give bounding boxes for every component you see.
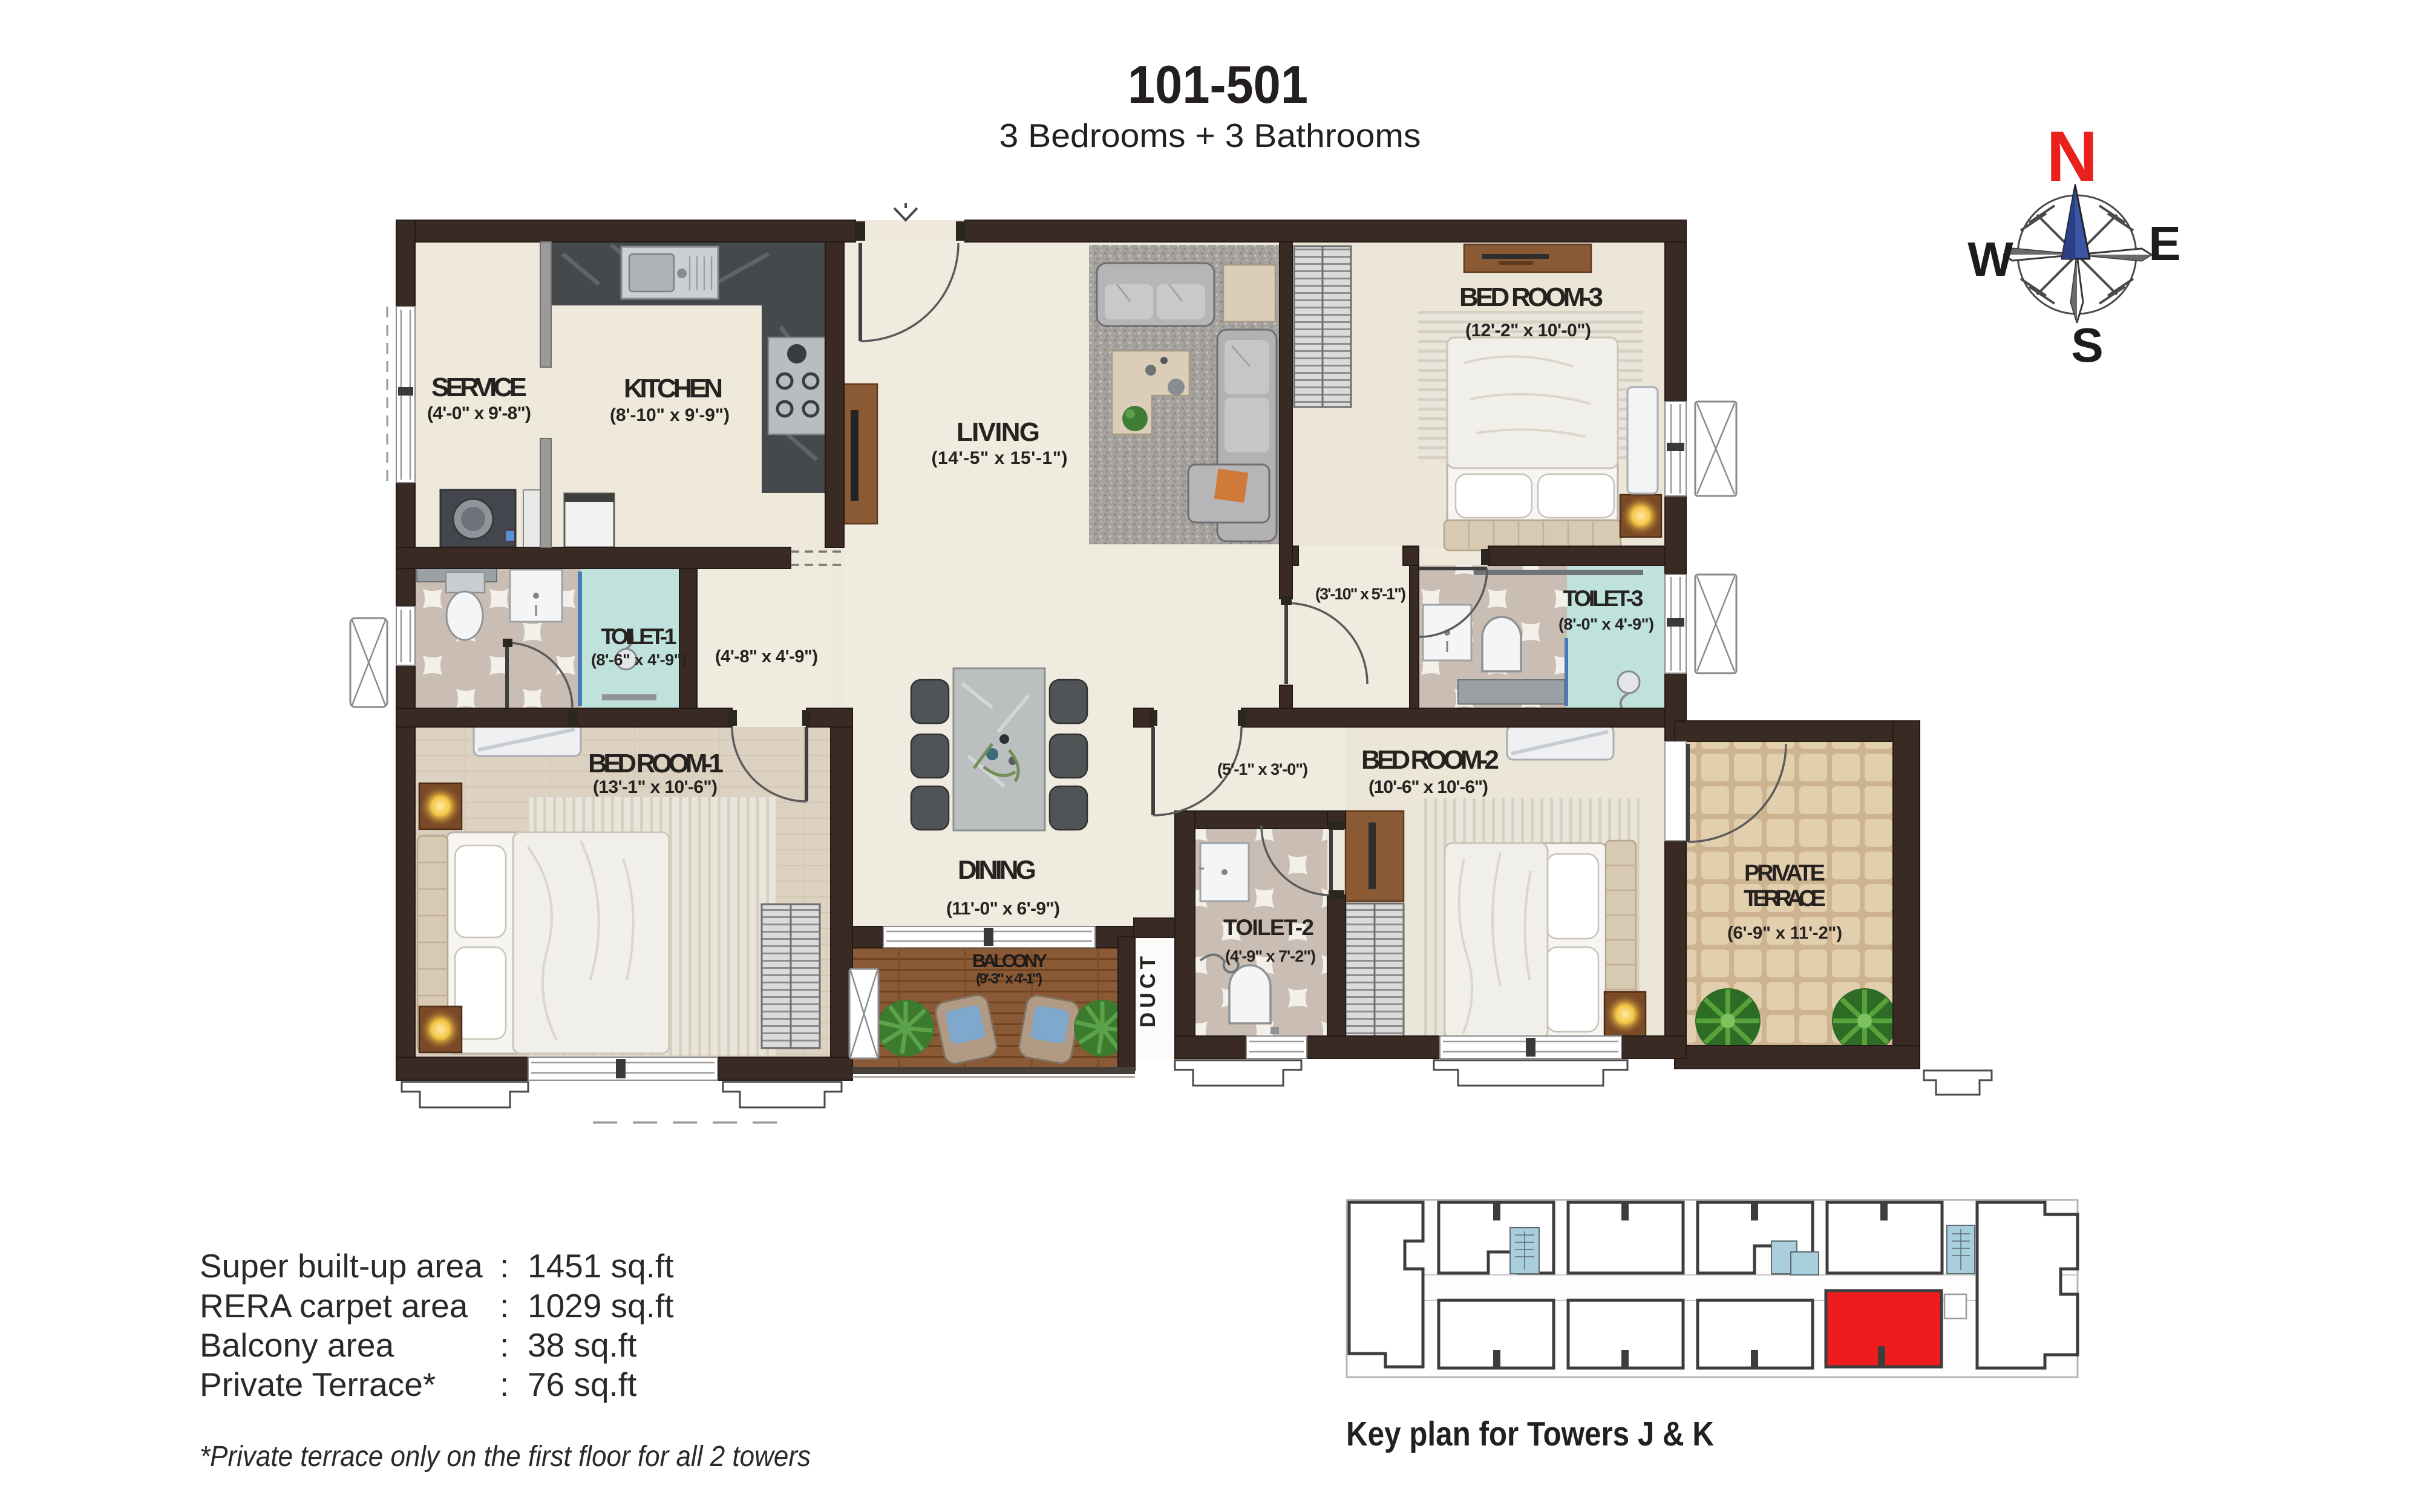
svg-text:(8'-6" x 4'-9"): (8'-6" x 4'-9") bbox=[591, 651, 687, 669]
svg-text:(8'-0" x 4'-9"): (8'-0" x 4'-9") bbox=[1558, 615, 1654, 633]
svg-text:76 sq.ft: 76 sq.ft bbox=[528, 1366, 636, 1403]
svg-text:(12'-2" x 10'-0"): (12'-2" x 10'-0") bbox=[1465, 321, 1591, 341]
svg-text:BED ROOM-1: BED ROOM-1 bbox=[588, 749, 724, 778]
svg-text:*Private terrace only on the f: *Private terrace only on the first floor… bbox=[200, 1441, 811, 1473]
svg-text:TOILET-3: TOILET-3 bbox=[1563, 586, 1644, 611]
svg-text:N: N bbox=[2046, 117, 2098, 197]
svg-text:S: S bbox=[2071, 318, 2103, 372]
svg-text:(9'-3" x 4'-1"): (9'-3" x 4'-1") bbox=[976, 971, 1042, 987]
svg-text:(4'-8" x 4'-9"): (4'-8" x 4'-9") bbox=[715, 647, 818, 666]
svg-text:Key plan for Towers J & K: Key plan for Towers J & K bbox=[1346, 1415, 1714, 1453]
svg-text::: : bbox=[500, 1247, 509, 1285]
svg-text:(6'-9" x 11'-2"): (6'-9" x 11'-2") bbox=[1727, 924, 1842, 943]
svg-text:BED ROOM-2: BED ROOM-2 bbox=[1361, 745, 1499, 775]
svg-text:W: W bbox=[1967, 232, 2013, 286]
svg-text:(14'-5" x 15'-1"): (14'-5" x 15'-1") bbox=[932, 448, 1068, 468]
svg-text:TOILET-1: TOILET-1 bbox=[601, 624, 677, 649]
svg-text:(4'-9" x 7'-2"): (4'-9" x 7'-2") bbox=[1225, 947, 1316, 965]
svg-text:PRIVATE: PRIVATE bbox=[1744, 861, 1825, 886]
svg-text:DINING: DINING bbox=[958, 855, 1036, 885]
svg-text:(3'-10" x 5'-1"): (3'-10" x 5'-1") bbox=[1315, 585, 1406, 603]
svg-text::: : bbox=[500, 1287, 509, 1325]
svg-text:(5'-1" x 3'-0"): (5'-1" x 3'-0") bbox=[1217, 760, 1308, 778]
svg-text:(8'-10" x 9'-9"): (8'-10" x 9'-9") bbox=[610, 405, 730, 425]
svg-text:BED ROOM-3: BED ROOM-3 bbox=[1459, 282, 1603, 312]
svg-text:Balcony area: Balcony area bbox=[200, 1326, 394, 1364]
svg-text:BALCONY: BALCONY bbox=[972, 950, 1047, 971]
svg-text::: : bbox=[500, 1326, 509, 1364]
svg-text::: : bbox=[500, 1366, 509, 1403]
svg-text:3 Bedrooms + 3 Bathrooms: 3 Bedrooms + 3 Bathrooms bbox=[999, 117, 1421, 154]
svg-text:101-501: 101-501 bbox=[1128, 54, 1308, 114]
svg-text:(13'-1" x 10'-6"): (13'-1" x 10'-6") bbox=[593, 777, 718, 797]
svg-text:TOILET-2: TOILET-2 bbox=[1223, 915, 1314, 940]
svg-text:1029 sq.ft: 1029 sq.ft bbox=[528, 1287, 674, 1325]
svg-text:LIVING: LIVING bbox=[957, 417, 1040, 447]
svg-text:(4'-0" x 9'-8"): (4'-0" x 9'-8") bbox=[427, 403, 531, 423]
svg-text:SERVICE: SERVICE bbox=[431, 373, 527, 402]
svg-text:(10'-6" x 10'-6"): (10'-6" x 10'-6") bbox=[1369, 777, 1488, 797]
svg-text:Private Terrace*: Private Terrace* bbox=[200, 1366, 436, 1403]
svg-text:RERA carpet area: RERA carpet area bbox=[200, 1287, 468, 1325]
svg-text:Super built-up area: Super built-up area bbox=[200, 1247, 483, 1285]
svg-text:1451 sq.ft: 1451 sq.ft bbox=[528, 1247, 674, 1285]
svg-text:TERRACE: TERRACE bbox=[1744, 886, 1826, 911]
svg-text:KITCHEN: KITCHEN bbox=[624, 374, 723, 403]
svg-text:38 sq.ft: 38 sq.ft bbox=[528, 1326, 636, 1364]
svg-text:(11'-0" x 6'-9"): (11'-0" x 6'-9") bbox=[946, 899, 1060, 919]
svg-text:E: E bbox=[2148, 217, 2180, 270]
